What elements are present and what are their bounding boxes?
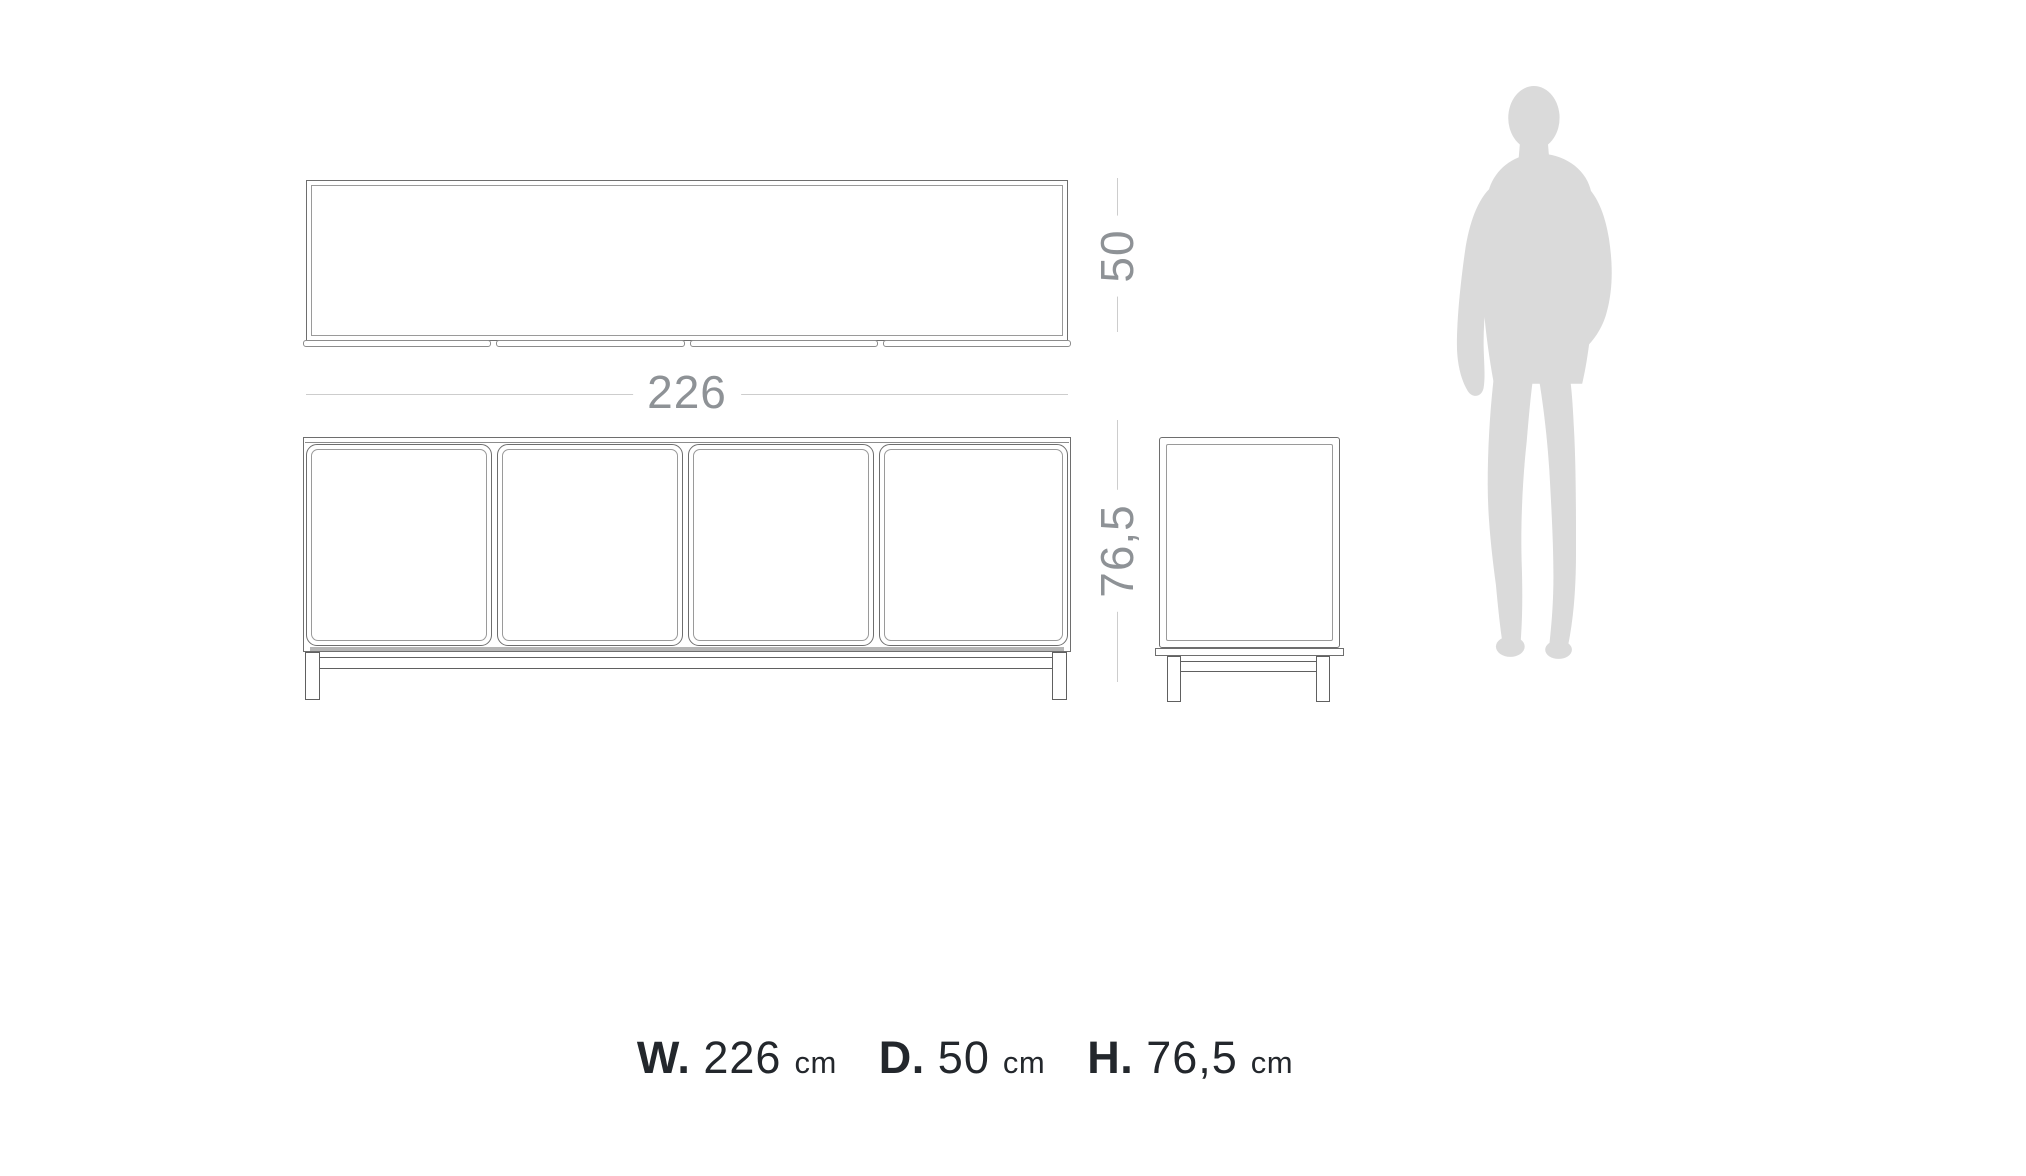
cabinet-door-3-panel (693, 449, 869, 641)
depth-dimension-label: 50 (1092, 215, 1142, 296)
front-right-leg (1052, 652, 1067, 700)
height-summary-unit: cm (1251, 1045, 1293, 1081)
door-top-segment (303, 340, 491, 347)
height-summary: H. 76,5 cm (1087, 1032, 1293, 1084)
width-summary-unit: cm (794, 1045, 836, 1081)
front-view (303, 437, 1071, 652)
door-top-segment (883, 340, 1071, 347)
front-left-leg (305, 652, 320, 700)
height-summary-prefix: H. (1087, 1032, 1133, 1084)
human-scale-silhouette (1433, 84, 1641, 700)
width-summary-prefix: W. (637, 1032, 691, 1084)
side-front-leg (1167, 656, 1181, 702)
cabinet-door-2-panel (502, 449, 678, 641)
height-dimension-label: 76,5 (1092, 490, 1142, 612)
side-back-leg (1316, 656, 1330, 702)
depth-summary: D. 50 cm (879, 1032, 1045, 1084)
front-base-rail (318, 657, 1054, 669)
depth-summary-value: 50 (938, 1032, 990, 1084)
plan-view (306, 180, 1068, 341)
cabinet-door-2 (497, 444, 683, 646)
height-summary-value: 76,5 (1146, 1032, 1238, 1084)
width-dimension-label: 226 (633, 367, 741, 417)
dimension-diagram: 226 50 76,5 (0, 0, 2026, 1176)
width-summary-value: 226 (703, 1032, 781, 1084)
cabinet-door-1-panel (311, 449, 487, 641)
human-silhouette-icon (1433, 84, 1641, 700)
cabinet-door-1 (306, 444, 492, 646)
cabinet-door-3 (688, 444, 874, 646)
front-view-bottom-shadow (310, 647, 1064, 651)
side-base-rail (1180, 661, 1318, 672)
door-top-segment (690, 340, 878, 347)
side-view (1159, 437, 1340, 648)
side-view-inner-edge (1166, 444, 1333, 641)
depth-summary-prefix: D. (879, 1032, 925, 1084)
depth-summary-unit: cm (1003, 1045, 1045, 1081)
side-view-base-plate (1155, 648, 1344, 656)
cabinet-door-4-panel (884, 449, 1063, 641)
dimensions-summary: W. 226 cm D. 50 cm H. 76,5 cm (637, 1032, 1293, 1084)
plan-view-inner-edge (311, 185, 1063, 336)
front-view-top-edge (305, 442, 1069, 443)
width-summary: W. 226 cm (637, 1032, 837, 1084)
cabinet-door-4 (879, 444, 1068, 646)
plan-view-door-top-strip (303, 340, 1071, 349)
door-top-segment (496, 340, 684, 347)
